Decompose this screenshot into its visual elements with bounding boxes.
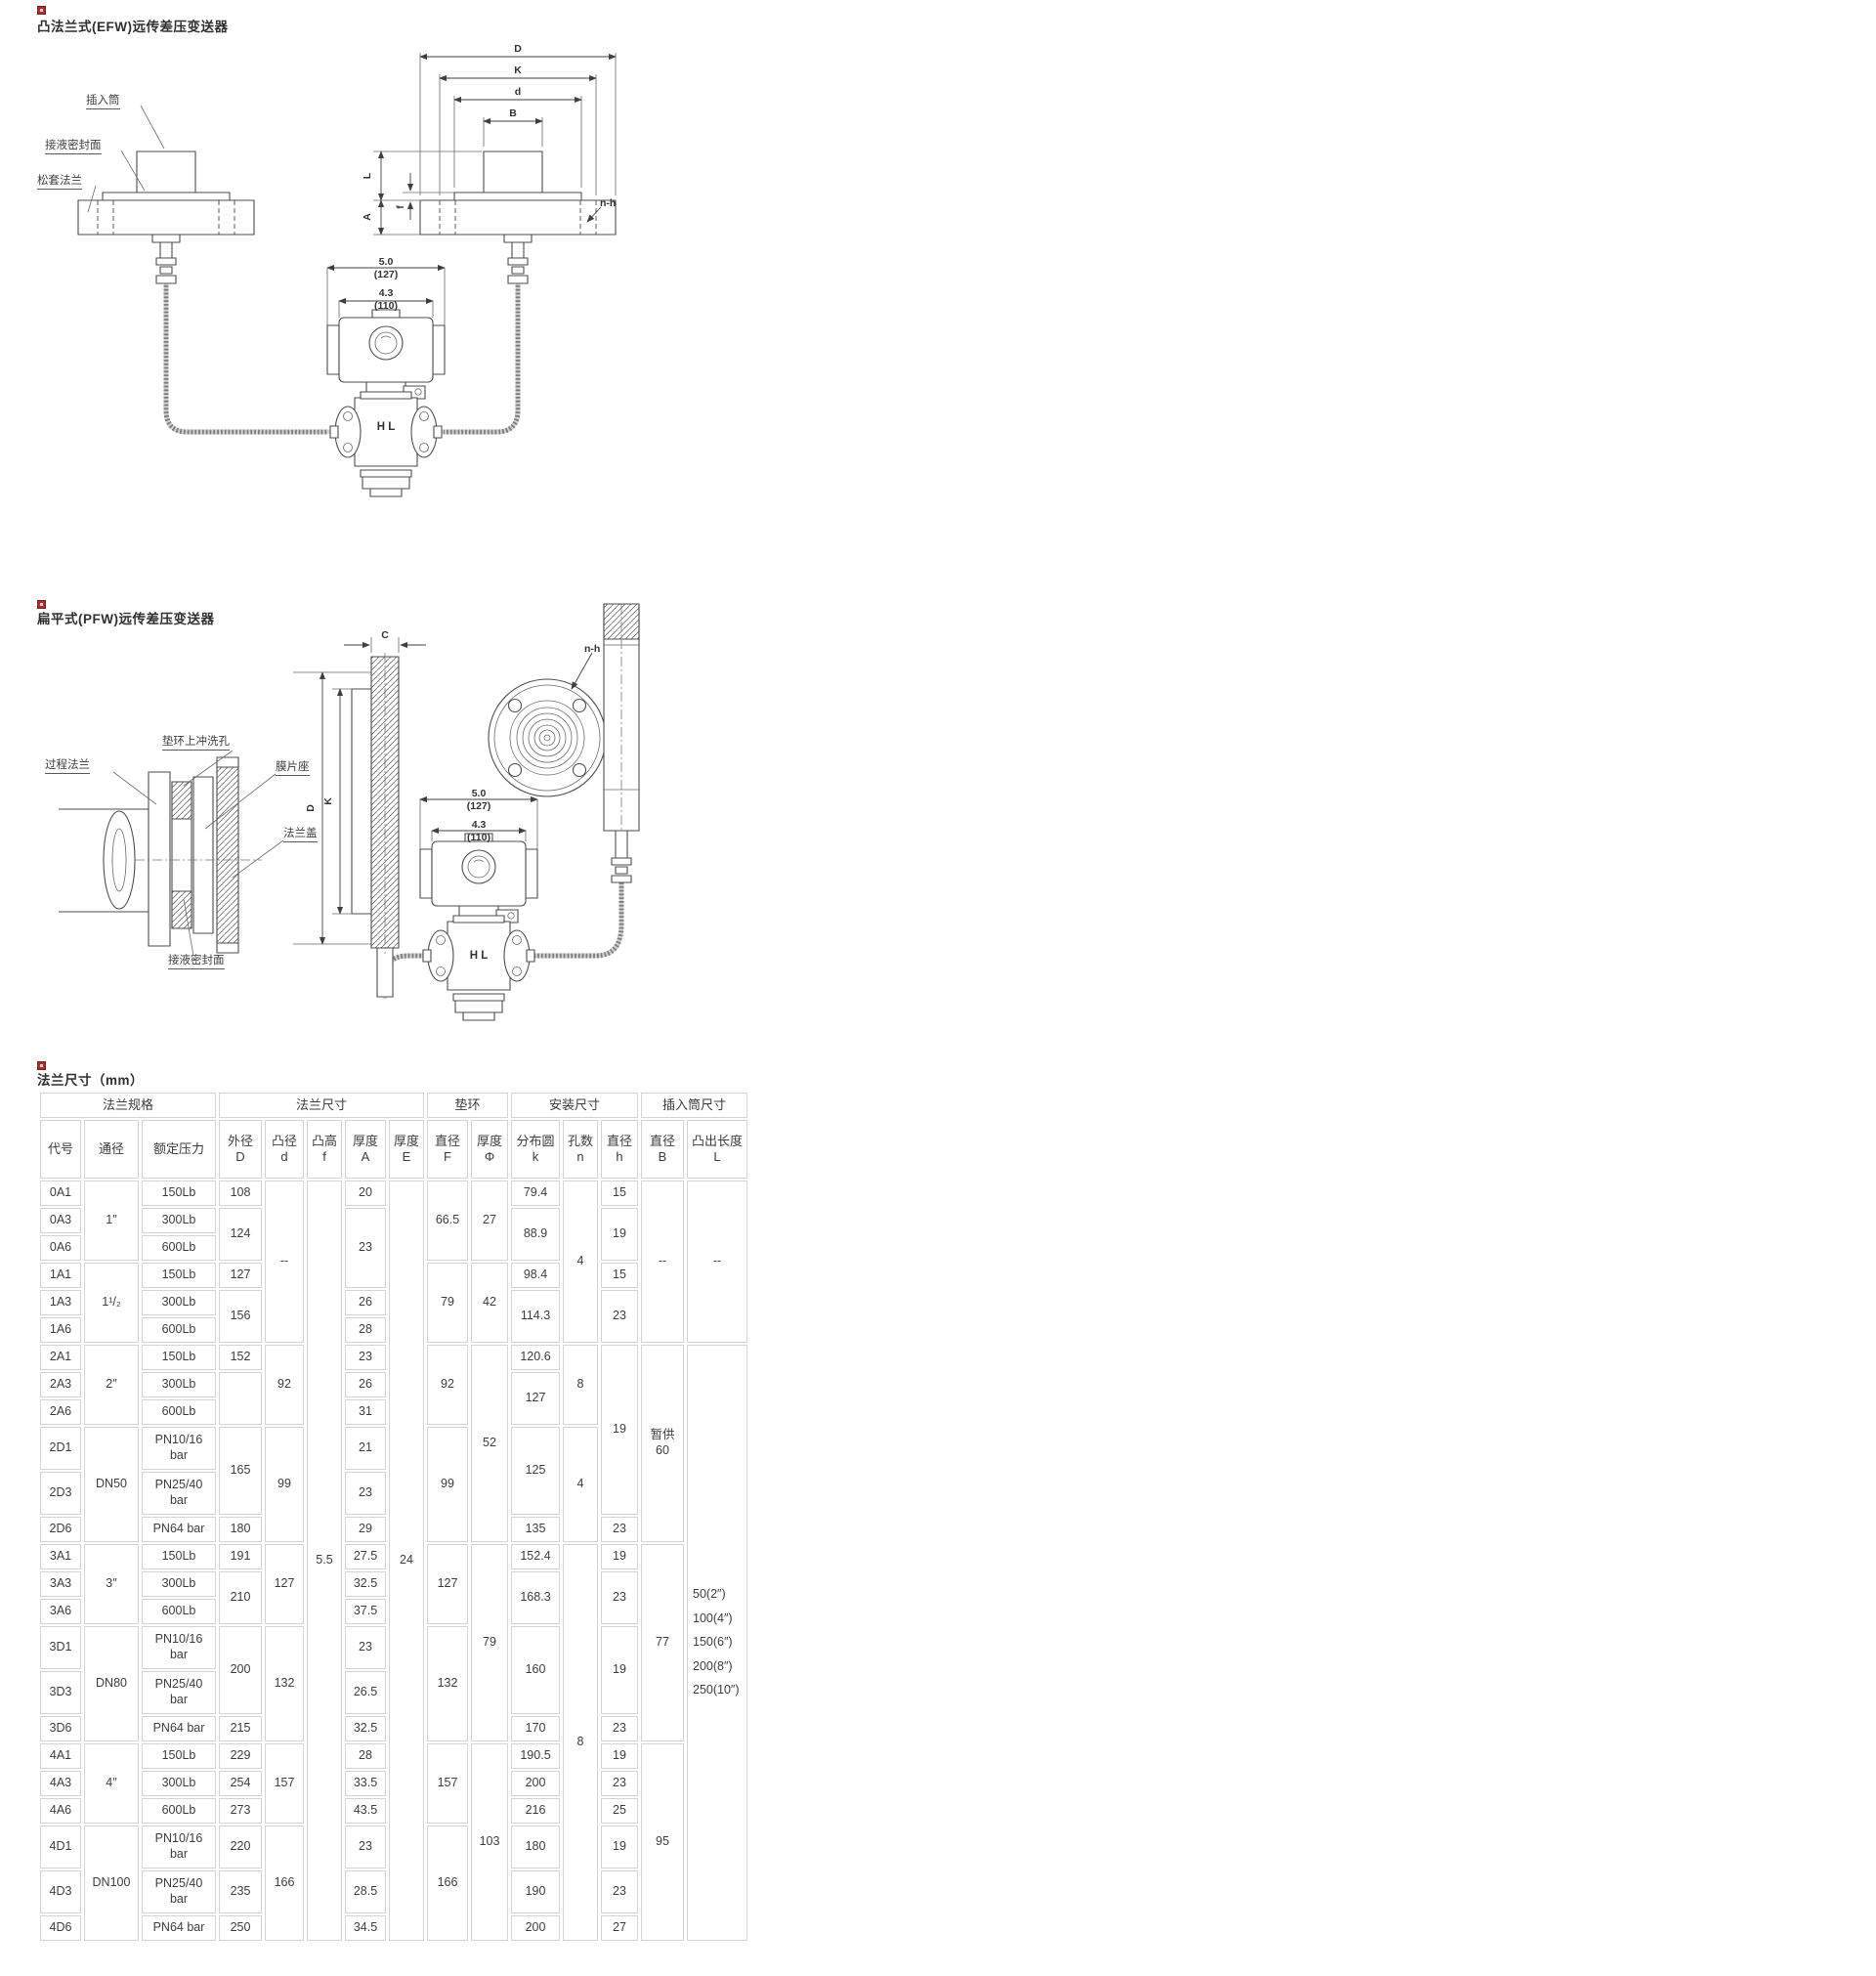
- table-cell: 52: [471, 1345, 508, 1542]
- table-column-header: 厚度A: [345, 1120, 386, 1179]
- table-cell: 99: [265, 1427, 304, 1542]
- table-cell: 37.5: [345, 1599, 386, 1624]
- table-cell: 1A3: [40, 1290, 81, 1315]
- dim-width2-in: 4.3: [379, 287, 394, 299]
- table-cell: 99: [427, 1427, 468, 1542]
- table-cell: PN64 bar: [142, 1716, 216, 1741]
- table-cell: 23: [345, 1345, 386, 1370]
- table-cell: 3″: [84, 1544, 139, 1624]
- table-cell: 600Lb: [142, 1798, 216, 1824]
- dim-A: A: [362, 213, 373, 221]
- table-cell: 166: [427, 1826, 468, 1941]
- table-cell: 25: [601, 1798, 638, 1824]
- table-cell: 19: [601, 1345, 638, 1515]
- table-cell: 31: [345, 1399, 386, 1425]
- dim-width-mm: (127): [374, 269, 399, 280]
- table-cell: 157: [427, 1743, 468, 1824]
- table-cell: 600Lb: [142, 1317, 216, 1343]
- table-cell: 24: [389, 1181, 424, 1941]
- table-cell: 23: [345, 1472, 386, 1515]
- table-group-header: 安装尺寸: [511, 1093, 638, 1118]
- dim-C: C: [381, 629, 389, 641]
- label-hl-ports-2: H L: [470, 950, 489, 962]
- table-cell: 28.5: [345, 1870, 386, 1913]
- table-cell: 4A6: [40, 1798, 81, 1824]
- table-cell: 2D1: [40, 1427, 81, 1470]
- table-column-header: 凸径d: [265, 1120, 304, 1179]
- table-cell: 600Lb: [142, 1399, 216, 1425]
- table-cell: 1A6: [40, 1317, 81, 1343]
- table-column-header: 厚度E: [389, 1120, 424, 1179]
- table-cell: 1¹/₂: [84, 1263, 139, 1343]
- table-cell: 216: [511, 1798, 560, 1824]
- section1-title: 凸法兰式(EFW)远传差压变送器: [37, 16, 228, 35]
- table-cell: PN10/16bar: [142, 1427, 216, 1470]
- table-cell: 132: [265, 1626, 304, 1741]
- table-cell: 5.5: [307, 1181, 342, 1941]
- table-cell: 15: [601, 1181, 638, 1206]
- table-column-header: 孔数n: [563, 1120, 598, 1179]
- table-cell: 77: [641, 1544, 684, 1741]
- dim-width2-in-2: 4.3: [472, 819, 487, 831]
- table-cell: 66.5: [427, 1181, 468, 1261]
- table-cell: 125: [511, 1427, 560, 1515]
- table-cell: 2D3: [40, 1472, 81, 1515]
- table-cell: 19: [601, 1208, 638, 1261]
- table-cell: 29: [345, 1517, 386, 1542]
- section3-title: 法兰尺寸（mm）: [37, 1069, 144, 1089]
- label-insert-cylinder: 插入筒: [86, 92, 120, 109]
- table-cell: 79: [471, 1544, 508, 1741]
- table-cell: 4: [563, 1427, 598, 1542]
- table-cell: 0A1: [40, 1181, 81, 1206]
- table-cell: 23: [601, 1571, 638, 1624]
- table-cell: 300Lb: [142, 1208, 216, 1233]
- dim-L: L: [362, 173, 373, 179]
- dim-B: B: [509, 107, 517, 119]
- table-cell: 27.5: [345, 1544, 386, 1569]
- table-cell: 79.4: [511, 1181, 560, 1206]
- table-cell: 4: [563, 1181, 598, 1343]
- table-cell: DN80: [84, 1626, 139, 1741]
- table-cell: 32.5: [345, 1571, 386, 1597]
- table-cell: 23: [345, 1626, 386, 1669]
- table-cell: --: [687, 1181, 747, 1343]
- table-cell: 4″: [84, 1743, 139, 1824]
- table-cell: 19: [601, 1544, 638, 1569]
- table-body: 0A11″150Lb108--5.5202466.52779.4415----0…: [40, 1181, 747, 1941]
- table-cell: 156: [219, 1290, 262, 1343]
- table-cell: 3D3: [40, 1671, 81, 1714]
- table-cell: 8: [563, 1345, 598, 1425]
- table-column-header: 直径F: [427, 1120, 468, 1179]
- table-cell: 23: [601, 1771, 638, 1796]
- table-group-header: 法兰规格: [40, 1093, 216, 1118]
- table-cell: 300Lb: [142, 1771, 216, 1796]
- table-cell: 15: [601, 1263, 638, 1288]
- table-cell: 98.4: [511, 1263, 560, 1288]
- dim-width2-mm-2: (110): [467, 832, 490, 843]
- table-cell: 127: [511, 1372, 560, 1425]
- table-cell: 4D1: [40, 1826, 81, 1869]
- table-cell: 114.3: [511, 1290, 560, 1343]
- table-cell: 28: [345, 1743, 386, 1769]
- table-column-header: 凸高f: [307, 1120, 342, 1179]
- table-cell: 23: [601, 1517, 638, 1542]
- table-cell: 180: [219, 1517, 262, 1542]
- table-cell: 191: [219, 1544, 262, 1569]
- table-cell: 19: [601, 1826, 638, 1869]
- table-cell: 4D3: [40, 1870, 81, 1913]
- table-cell: 600Lb: [142, 1235, 216, 1261]
- table-cell: 152.4: [511, 1544, 560, 1569]
- table-cell: 273: [219, 1798, 262, 1824]
- table-cell: 170: [511, 1716, 560, 1741]
- dim-K-2: K: [322, 797, 334, 805]
- table-column-header: 外径D: [219, 1120, 262, 1179]
- table-cell: 92: [427, 1345, 468, 1425]
- table-cell: 132: [427, 1626, 468, 1741]
- label-flange-cover: 法兰盖: [283, 825, 318, 842]
- table-cell: 26: [345, 1290, 386, 1315]
- table-cell: 200: [511, 1771, 560, 1796]
- table-cell: 26: [345, 1372, 386, 1397]
- section-marker-icon: [37, 6, 46, 15]
- pfw-drawing: [37, 594, 721, 1070]
- table-cell: 2D6: [40, 1517, 81, 1542]
- table-cell: 160: [511, 1626, 560, 1714]
- table-cell: 32.5: [345, 1716, 386, 1741]
- table-cell: PN25/40bar: [142, 1671, 216, 1714]
- table-column-header: 厚度Φ: [471, 1120, 508, 1179]
- table-cell: 2A3: [40, 1372, 81, 1397]
- table-cell: 3A3: [40, 1571, 81, 1597]
- table-cell: 0A6: [40, 1235, 81, 1261]
- label-process-flange: 过程法兰: [45, 756, 90, 774]
- table-cell: 166: [265, 1826, 304, 1941]
- table-cell: 4A1: [40, 1743, 81, 1769]
- table-cell: 3D1: [40, 1626, 81, 1669]
- table-cell: 190.5: [511, 1743, 560, 1769]
- table-cell: 暂供60: [641, 1345, 684, 1542]
- table-column-header: 代号: [40, 1120, 81, 1179]
- table-cell: --: [265, 1181, 304, 1343]
- table-cell: 20: [345, 1181, 386, 1206]
- label-loose-flange: 松套法兰: [37, 172, 82, 190]
- table-cell: 215: [219, 1716, 262, 1741]
- table-column-header: 通径: [84, 1120, 139, 1179]
- table-cell: DN50: [84, 1427, 139, 1542]
- table-cell: 92: [265, 1345, 304, 1425]
- table-cell: 21: [345, 1427, 386, 1470]
- table-cell: 127: [265, 1544, 304, 1624]
- table-cell: 50(2″)100(4″)150(6″)200(8″)250(10″): [687, 1345, 747, 1941]
- table-cell: 229: [219, 1743, 262, 1769]
- table-cell: 3A6: [40, 1599, 81, 1624]
- table-cell: 120.6: [511, 1345, 560, 1370]
- table-cell: 26.5: [345, 1671, 386, 1714]
- label-n-h: n-h: [600, 197, 616, 209]
- dim-width-in: 5.0: [379, 256, 394, 268]
- label-diaphragm-seat: 膜片座: [276, 758, 310, 776]
- table-cell: 152: [219, 1345, 262, 1370]
- table-row: 0A11″150Lb108--5.5202466.52779.4415----: [40, 1181, 747, 1206]
- table-cell: 300Lb: [142, 1571, 216, 1597]
- table-cell: 200: [511, 1915, 560, 1941]
- table-cell: --: [641, 1181, 684, 1343]
- dim-width-mm-2: (127): [467, 800, 491, 812]
- dim-width2-mm: (110): [374, 300, 398, 312]
- table-cell: 103: [471, 1743, 508, 1941]
- table-cell: 23: [345, 1826, 386, 1869]
- table-cell: 33.5: [345, 1771, 386, 1796]
- label-flush-hole: 垫环上冲洗孔: [162, 733, 230, 751]
- table-cell: 42: [471, 1263, 508, 1343]
- table-group-header: 垫环: [427, 1093, 508, 1118]
- table-cell: 19: [601, 1626, 638, 1714]
- table-cell: 43.5: [345, 1798, 386, 1824]
- table-cell: PN25/40bar: [142, 1870, 216, 1913]
- table-cell: 150Lb: [142, 1743, 216, 1769]
- table-cell: 1A1: [40, 1263, 81, 1288]
- dim-width-in-2: 5.0: [472, 788, 487, 799]
- table-cell: 200: [219, 1626, 262, 1714]
- label-wetted-seal-face: 接液密封面: [45, 137, 102, 154]
- table-cell: 34.5: [345, 1915, 386, 1941]
- table-cell: 250: [219, 1915, 262, 1941]
- table-cell: 2″: [84, 1345, 139, 1425]
- table-cell: PN10/16bar: [142, 1826, 216, 1869]
- table-cell: 23: [601, 1290, 638, 1343]
- table-cell: 23: [601, 1870, 638, 1913]
- table-cell: 190: [511, 1870, 560, 1913]
- table-column-header: 额定压力: [142, 1120, 216, 1179]
- flange-dimensions-table: 法兰规格法兰尺寸垫环安装尺寸插入筒尺寸代号通径额定压力外径D凸径d凸高f厚度A厚…: [37, 1091, 750, 1943]
- table-cell: PN25/40bar: [142, 1472, 216, 1515]
- table-cell: 157: [265, 1743, 304, 1824]
- table-cell: 2A6: [40, 1399, 81, 1425]
- table-cell: 95: [641, 1743, 684, 1941]
- table-cell: 88.9: [511, 1208, 560, 1261]
- table-cell: 2A1: [40, 1345, 81, 1370]
- table-cell: 210: [219, 1571, 262, 1624]
- table-cell: 300Lb: [142, 1372, 216, 1397]
- table-cell: 127: [427, 1544, 468, 1624]
- dim-D: D: [514, 43, 522, 55]
- table-cell: 1″: [84, 1181, 139, 1261]
- table-cell: PN64 bar: [142, 1517, 216, 1542]
- table-cell: 27: [601, 1915, 638, 1941]
- table-group-header: 法兰尺寸: [219, 1093, 424, 1118]
- table-cell: 254: [219, 1771, 262, 1796]
- table-cell: DN100: [84, 1826, 139, 1941]
- table-cell: 28: [345, 1317, 386, 1343]
- dim-K: K: [514, 64, 522, 76]
- table-cell: 23: [601, 1716, 638, 1741]
- table-cell: 108: [219, 1181, 262, 1206]
- efw-drawing: [37, 33, 682, 522]
- label-hl-ports: H L: [377, 421, 396, 433]
- table-cell: 165: [219, 1427, 262, 1515]
- table-group-header: 插入筒尺寸: [641, 1093, 747, 1118]
- table-cell: 3A1: [40, 1544, 81, 1569]
- table-cell: [219, 1372, 262, 1425]
- table-cell: 4A3: [40, 1771, 81, 1796]
- table-cell: 4D6: [40, 1915, 81, 1941]
- table-cell: 220: [219, 1826, 262, 1869]
- table-cell: PN10/16bar: [142, 1626, 216, 1669]
- table-head: 法兰规格法兰尺寸垫环安装尺寸插入筒尺寸代号通径额定压力外径D凸径d凸高f厚度A厚…: [40, 1093, 747, 1179]
- table-cell: 127: [219, 1263, 262, 1288]
- table-cell: 124: [219, 1208, 262, 1261]
- table-cell: 300Lb: [142, 1290, 216, 1315]
- table-cell: 235: [219, 1870, 262, 1913]
- dim-D-2: D: [305, 804, 317, 812]
- table-cell: PN64 bar: [142, 1915, 216, 1941]
- label-n-h-2: n-h: [584, 643, 600, 655]
- table-cell: 27: [471, 1181, 508, 1261]
- table-cell: 600Lb: [142, 1599, 216, 1624]
- table-cell: 168.3: [511, 1571, 560, 1624]
- table-cell: 180: [511, 1826, 560, 1869]
- table-cell: 150Lb: [142, 1345, 216, 1370]
- table-cell: 135: [511, 1517, 560, 1542]
- table-cell: 3D6: [40, 1716, 81, 1741]
- table-column-header: 直径h: [601, 1120, 638, 1179]
- dim-d: d: [515, 86, 521, 98]
- table-cell: 150Lb: [142, 1263, 216, 1288]
- table-column-header: 分布圆k: [511, 1120, 560, 1179]
- table-cell: 19: [601, 1743, 638, 1769]
- table-cell: 150Lb: [142, 1181, 216, 1206]
- table-column-header: 直径B: [641, 1120, 684, 1179]
- table-cell: 150Lb: [142, 1544, 216, 1569]
- table-column-header: 凸出长度L: [687, 1120, 747, 1179]
- table-cell: 0A3: [40, 1208, 81, 1233]
- table-cell: 8: [563, 1544, 598, 1941]
- table-cell: 79: [427, 1263, 468, 1343]
- dim-f: f: [395, 205, 406, 209]
- label-wetted-seal-face-2: 接液密封面: [168, 952, 225, 969]
- table-cell: 23: [345, 1208, 386, 1288]
